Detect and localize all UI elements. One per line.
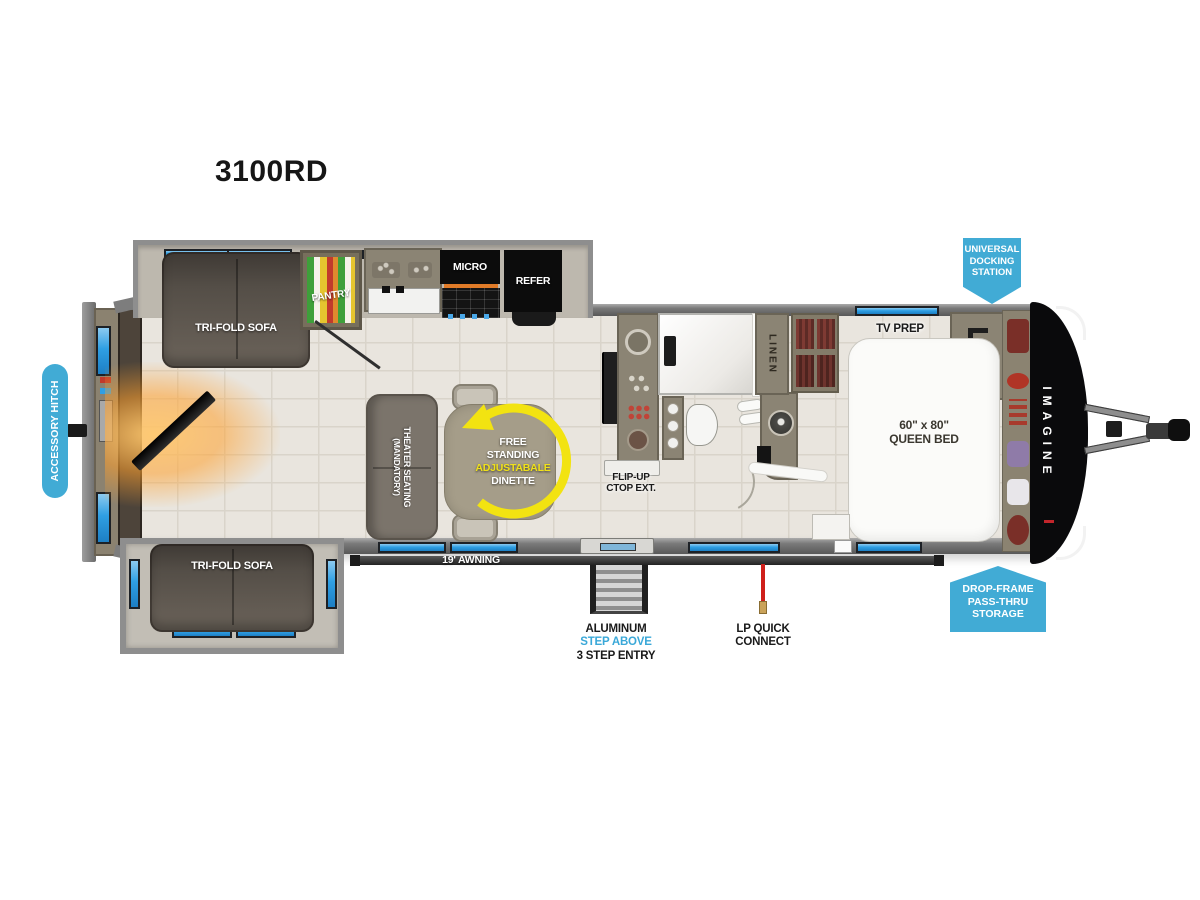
tv-prep-label: TV PREP <box>862 323 938 337</box>
wardrobe-open-door-h <box>968 328 988 333</box>
entry-door <box>580 538 654 554</box>
universal-docking-badge: UNIVERSAL DOCKING STATION <box>963 238 1021 304</box>
sink-dishes <box>372 262 400 278</box>
cap-swoosh-bottom <box>1056 526 1086 560</box>
universal-docking-line1: UNIVERSAL <box>963 244 1021 256</box>
counter-front <box>368 288 440 314</box>
tri-fold-sofa-top: TRI-FOLD SOFA <box>162 252 310 368</box>
lp-quick-connect-line <box>761 564 765 602</box>
refrigerator-base <box>512 312 556 326</box>
hitch-jack-box <box>1106 421 1122 437</box>
hitch-a-frame-lower <box>1084 435 1150 454</box>
counter-clip-left <box>382 286 390 293</box>
queen-bed: 60" x 80" QUEEN BED <box>848 338 1000 542</box>
bed-label-line2: QUEEN BED <box>889 433 959 447</box>
stored-item-purple <box>1007 441 1029 467</box>
entry-steps-label-line2: STEP ABOVE <box>580 636 652 650</box>
vanity-roll-2 <box>667 420 679 432</box>
island-sink-lid <box>625 329 651 355</box>
stored-item-red-oval <box>1007 373 1029 389</box>
range-handle <box>444 284 498 288</box>
front-cap: IMAGINE <box>1030 302 1088 564</box>
stored-item-darkred-2 <box>1007 515 1029 545</box>
slideout-window-right <box>326 559 337 609</box>
cap-swoosh-top <box>1056 306 1086 340</box>
drop-frame-line1: DROP-FRAME <box>950 583 1046 596</box>
shower-fixture <box>664 336 676 366</box>
door-side-window-3 <box>856 542 922 553</box>
kitchen-island <box>617 313 659 462</box>
lp-connect-label-line2: CONNECT <box>735 636 790 650</box>
hanging-clothes-2 <box>817 319 835 349</box>
universal-docking-line2: DOCKING <box>963 256 1021 268</box>
stored-clothes-darkred <box>1007 319 1029 353</box>
drop-frame-line3: STORAGE <box>950 608 1046 621</box>
floorplan-page: 3100RD ACCESSORY HITCH TRI-FOLD SOFA PAN… <box>0 0 1200 900</box>
imagine-logo: IMAGINE <box>1040 386 1054 479</box>
island-burners <box>627 403 651 421</box>
bath-sink-bowl <box>768 410 794 436</box>
microwave-label: MICRO <box>453 261 487 273</box>
linen-cabinet: LINEN <box>755 313 789 395</box>
island-knobs <box>627 373 651 395</box>
vanity-roll-1 <box>667 403 679 415</box>
imagine-logo-accent <box>1044 520 1054 523</box>
tri-fold-sofa-bottom: TRI-FOLD SOFA <box>150 544 314 632</box>
utility-box <box>834 540 852 553</box>
toilet <box>686 404 718 446</box>
stored-items-red <box>1009 399 1027 425</box>
flip-up-label-line2: CTOP EXT. <box>606 483 656 494</box>
bedroom-window <box>855 306 939 316</box>
door-side-window-2 <box>688 542 780 553</box>
door-side-window-1b <box>450 542 518 553</box>
model-title: 3100RD <box>215 155 328 189</box>
lp-quick-connect-fitting <box>759 601 767 614</box>
dinette-label-line4: DINETTE <box>491 475 535 488</box>
tri-fold-sofa-bottom-label: TRI-FOLD SOFA <box>191 560 273 572</box>
dinette-label-line3: ADJUSTABALE <box>475 462 550 475</box>
entry-steps <box>590 565 648 614</box>
entry-steps-label-line3: 3 STEP ENTRY <box>577 650 656 664</box>
entry-steps-label: ALUMINUM STEP ABOVE 3 STEP ENTRY <box>556 620 676 666</box>
hitch-coupler-head <box>1168 419 1190 441</box>
bedroom-entry-wall <box>812 514 850 540</box>
front-storage-column <box>1002 310 1032 552</box>
accessory-hitch-label: ACCESSORY HITCH <box>49 381 61 482</box>
pantry-cabinet: PANTRY <box>300 250 362 330</box>
counter-clip-right <box>396 286 404 293</box>
slideout-window-left <box>129 559 140 609</box>
flip-up-label-line1: FLIP-UP <box>612 472 650 483</box>
fireplace-glow <box>105 362 280 507</box>
theater-label-line1: THEATER SEATING <box>402 427 412 508</box>
hanging-clothes-4 <box>817 355 835 387</box>
hanging-clothes-1 <box>796 319 814 349</box>
microwave: MICRO <box>440 250 500 284</box>
awning-end-left <box>350 555 360 566</box>
refrigerator-label: REFER <box>516 275 551 287</box>
dinette-label: FREE STANDING ADJUSTABALE DINETTE <box>452 432 574 492</box>
dinette-label-line1: FREE <box>499 436 526 449</box>
range-knobs <box>448 314 496 319</box>
accessory-hitch-receiver <box>67 424 87 437</box>
wardrobe <box>791 313 839 393</box>
theater-seating: THEATER SEATING (MANDATORY) <box>366 394 438 540</box>
lp-connect-label: LP QUICK CONNECT <box>715 620 811 652</box>
bath-vanity <box>662 396 684 460</box>
theater-label-line2: (MANDATORY) <box>392 438 402 496</box>
dinette-label-line2: STANDING <box>487 449 539 462</box>
entry-door-glass <box>600 543 636 551</box>
bed-label: 60" x 80" QUEEN BED <box>849 419 999 446</box>
bed-label-line1: 60" x 80" <box>899 419 949 433</box>
refrigerator: REFER <box>504 250 562 312</box>
tri-fold-sofa-top-label: TRI-FOLD SOFA <box>195 322 277 334</box>
linen-label: LINEN <box>767 334 778 374</box>
accessory-hitch-badge: ACCESSORY HITCH <box>42 364 68 498</box>
universal-docking-line3: STATION <box>963 267 1021 279</box>
entry-steps-label-line1: ALUMINUM <box>586 623 647 637</box>
drop-frame-storage-badge: DROP-FRAME PASS-THRU STORAGE <box>950 566 1046 632</box>
sink-basin <box>408 262 432 278</box>
door-side-window-1a <box>378 542 446 553</box>
drop-frame-line2: PASS-THRU <box>950 596 1046 609</box>
awning-end-right <box>934 555 944 566</box>
theater-seating-label: THEATER SEATING (MANDATORY) <box>392 392 412 542</box>
hanging-clothes-3 <box>796 355 814 387</box>
lp-connect-label-line1: LP QUICK <box>736 623 789 637</box>
awning-label: 19' AWNING <box>428 555 514 566</box>
stored-item-white <box>1007 479 1029 505</box>
vanity-roll-3 <box>667 437 679 449</box>
flip-up-label: FLIP-UP CTOP EXT. <box>592 470 670 496</box>
island-basin <box>627 429 649 451</box>
